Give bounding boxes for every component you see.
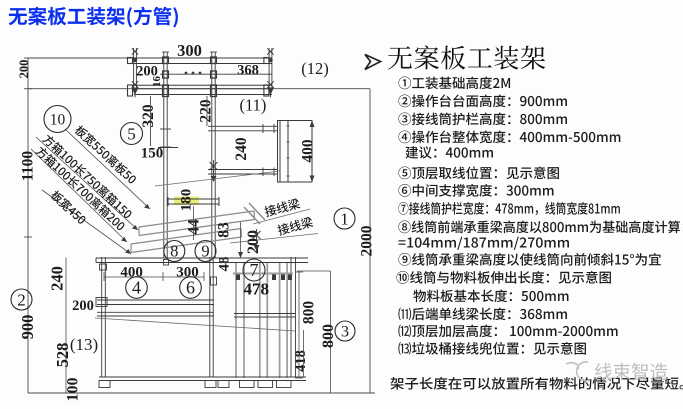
svg-text:3: 3: [341, 323, 349, 340]
svg-text:16: 16: [151, 76, 163, 88]
svg-text:180: 180: [179, 189, 195, 212]
svg-text:2: 2: [17, 290, 26, 309]
svg-text:1100: 1100: [19, 151, 36, 181]
svg-text:(12): (12): [301, 59, 329, 78]
svg-text:800: 800: [320, 324, 337, 348]
svg-text:(13): (13): [70, 335, 98, 354]
svg-text:6: 6: [186, 278, 195, 298]
svg-text:100: 100: [64, 378, 81, 402]
svg-text:900: 900: [18, 315, 37, 340]
svg-text:2000: 2000: [358, 225, 375, 256]
svg-text:5: 5: [127, 124, 136, 143]
svg-text:300: 300: [177, 41, 202, 60]
svg-text:1: 1: [340, 209, 349, 228]
svg-text:220: 220: [197, 99, 214, 123]
svg-text:200: 200: [17, 60, 31, 79]
svg-text:44: 44: [185, 219, 202, 235]
svg-text:7: 7: [250, 260, 259, 280]
svg-text:200: 200: [72, 298, 94, 314]
svg-text:48: 48: [217, 257, 233, 272]
svg-text:10: 10: [50, 111, 66, 128]
svg-text:4: 4: [132, 278, 141, 298]
svg-text:320: 320: [140, 104, 157, 128]
svg-text:418: 418: [293, 350, 309, 372]
svg-text:800: 800: [300, 301, 317, 325]
svg-text:478: 478: [244, 280, 270, 299]
svg-text:240: 240: [233, 137, 250, 161]
svg-text:200: 200: [245, 230, 262, 254]
svg-text:400: 400: [299, 139, 316, 163]
svg-text:150: 150: [141, 146, 164, 162]
svg-text:83: 83: [215, 222, 232, 238]
svg-text:240: 240: [48, 266, 67, 291]
svg-text:(11): (11): [240, 96, 267, 115]
svg-text:368: 368: [237, 63, 259, 79]
